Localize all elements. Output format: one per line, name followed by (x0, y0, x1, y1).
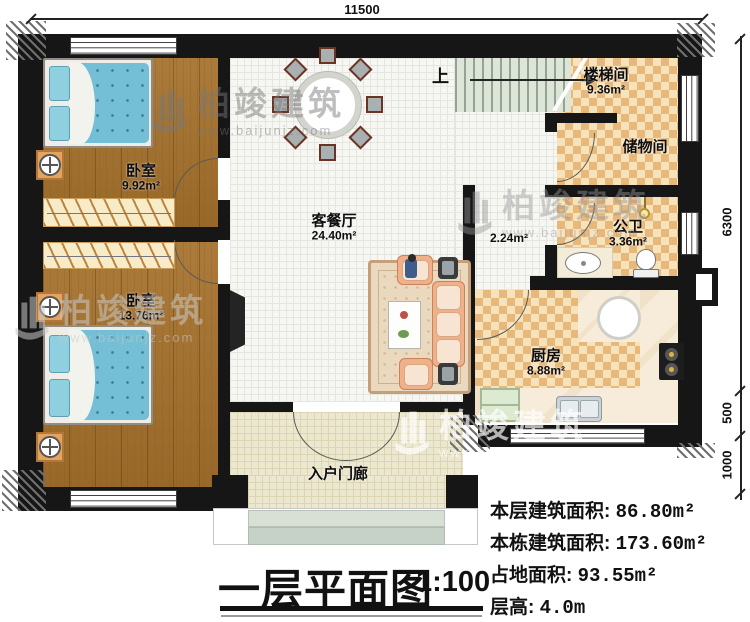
dimension-right-main: 6300 (720, 208, 735, 237)
porch-column-right (446, 475, 478, 508)
dining-chair (366, 96, 383, 113)
side-table-top (438, 257, 458, 279)
stat-row-floor-area: 本层建筑面积: 86.80m² (490, 496, 707, 528)
watermark: 柏竣建筑 www.baijunjz.com (455, 188, 650, 240)
wall-bath-left-lower (545, 245, 557, 278)
porch-column-left (212, 475, 248, 508)
person-figure-head (408, 254, 416, 262)
toilet-bowl (636, 249, 656, 270)
sofa-right (432, 281, 465, 367)
stat-row-building-area: 本栋建筑面积: 173.60m² (490, 528, 707, 560)
bath-sink-drain (581, 261, 586, 266)
coffee-table (388, 301, 421, 349)
room-label-living: 客餐厅24.40m² (311, 212, 356, 243)
title-underline-thick (220, 606, 483, 611)
entry-step-2 (248, 527, 445, 545)
stair-up-label: 上 (432, 62, 449, 87)
tv-unit (230, 290, 245, 352)
window-storage-right (681, 75, 699, 142)
room-label-stairwell: 楼梯间9.36m² (583, 66, 628, 97)
brand-logo-icon (150, 86, 190, 138)
closet-bedroom1 (43, 198, 175, 227)
dimension-line-right (740, 36, 742, 500)
wall-break-hatch-top-left (6, 21, 46, 60)
stat-row-footprint-area: 占地面积: 93.55m² (490, 560, 707, 592)
toilet-tank (633, 269, 659, 278)
window-bathroom-right (681, 212, 699, 255)
dimension-right-mid: 500 (720, 402, 735, 424)
bed-2-pillow-b (49, 379, 70, 417)
room-label-kitchen: 厨房8.88m² (527, 347, 565, 378)
wall-living-bottom-left (230, 402, 293, 412)
dimension-top-value: 11500 (344, 2, 379, 17)
stair-direction-arrow (470, 79, 588, 81)
wall-break-hatch-top-right (677, 23, 715, 57)
dimension-right-bottom: 1000 (720, 451, 735, 480)
gas-stove (659, 343, 684, 380)
stairs (455, 58, 571, 112)
dining-chair (319, 47, 336, 64)
armchair-bottom (399, 358, 433, 390)
side-table-bottom (438, 363, 458, 385)
bed-1-pillow-a (49, 66, 70, 101)
wall-porch-left (218, 402, 230, 475)
kitchen-round-counter (597, 296, 641, 340)
page-scale: 1:100 (416, 566, 490, 599)
room-label-storage: 储物间 (622, 138, 667, 155)
closet-bedroom2 (43, 242, 175, 269)
wall-bedrooms-living-2 (218, 200, 230, 240)
title-underline-thin (221, 615, 482, 617)
entry-step-1 (248, 510, 445, 527)
watermark: 柏竣建筑 www.baijunjz.com (150, 86, 345, 138)
brand-logo-icon (455, 188, 495, 240)
watermark: 柏竣建筑 www.baijunjz.com (12, 293, 207, 345)
dining-chair (319, 144, 336, 161)
room-label-porch: 入户门廊 (308, 465, 368, 482)
bed-1 (43, 58, 153, 148)
brand-logo-icon (392, 408, 432, 460)
stat-row-floor-height: 层高: 4.0m (490, 592, 707, 622)
lamp-icon (39, 154, 61, 176)
wall-break-hatch-kitchen-corner (677, 443, 715, 458)
wall-storage-left-top (545, 113, 557, 132)
wall-kitchen-top (530, 276, 678, 290)
window-bedroom1-top (70, 37, 177, 55)
nightstand-2b (36, 432, 64, 462)
wall-break-hatch-bottom-left (2, 470, 46, 511)
watermark: 柏竣建筑 www.baijunjz.com (392, 408, 587, 460)
wall-bedrooms-living-3 (218, 284, 230, 402)
flue-duct-inner (696, 274, 712, 300)
room-label-bedroom1: 卧室9.92m² (122, 162, 160, 193)
dimension-line-top (30, 18, 703, 20)
bed-1-pillow-b (49, 106, 70, 141)
lamp-icon (39, 436, 61, 458)
floor-plan-canvas: 上 (0, 0, 750, 622)
nightstand-1 (36, 150, 64, 180)
brand-logo-icon (12, 293, 52, 345)
window-bedroom2-bottom (70, 490, 177, 508)
area-stats: 本层建筑面积: 86.80m² 本栋建筑面积: 173.60m² 占地面积: 9… (490, 496, 707, 622)
